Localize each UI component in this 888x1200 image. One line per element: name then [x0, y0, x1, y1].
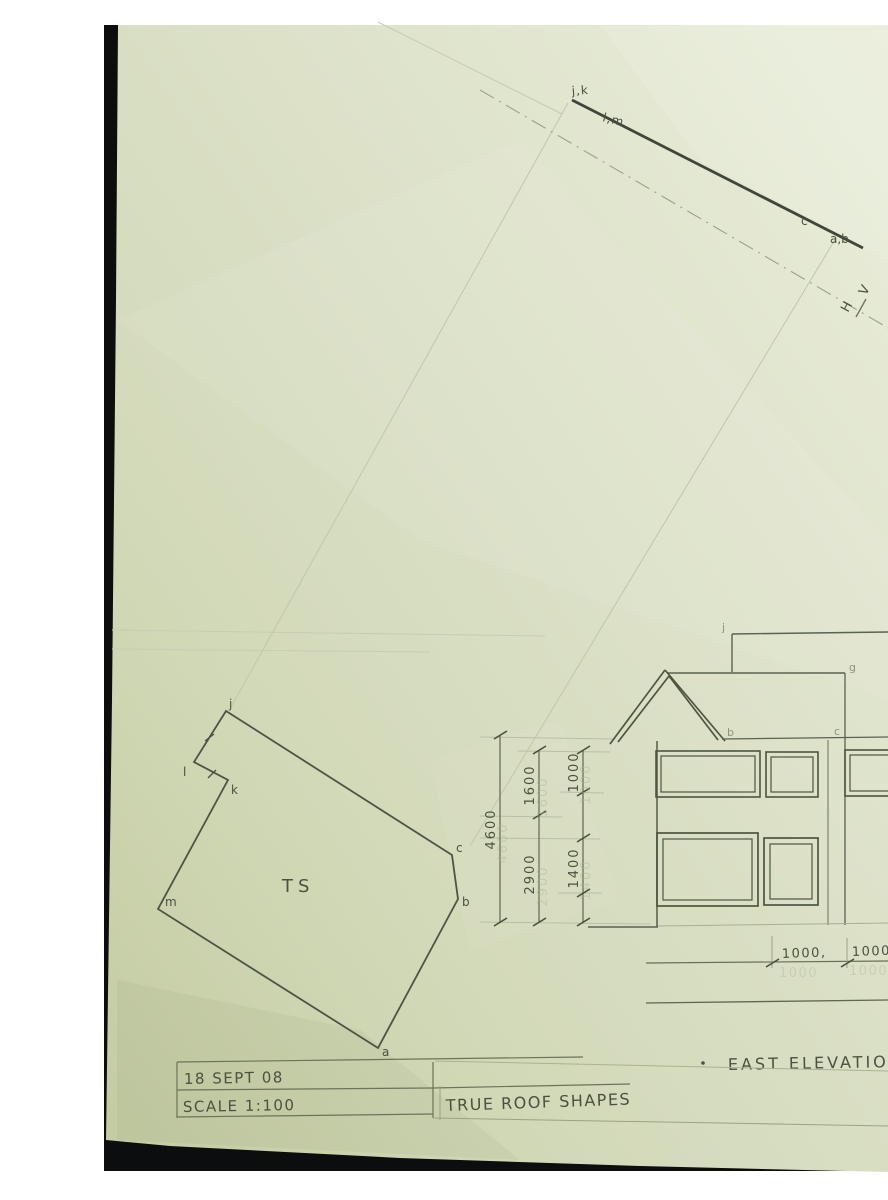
edge-view-label-c: c: [801, 214, 808, 228]
drawing-canvas: j,k l,m c a,b V H j l k m a b c TS: [0, 0, 888, 1200]
ts-vertex-k: k: [231, 783, 238, 797]
title-block-date: 18 SEPT 08: [184, 1068, 284, 1088]
title-dot: [701, 1061, 705, 1065]
ghost-1600: 1600: [536, 776, 551, 817]
ts-vertex-b: b: [462, 895, 470, 909]
ghost-1400: 1400: [579, 859, 594, 900]
elevation-label-c: c: [834, 725, 840, 738]
elevation-label-j: j: [721, 621, 725, 634]
photo-of-drawing-sheet: j,k l,m c a,b V H j l k m a b c TS: [0, 0, 888, 1200]
ghost-4600: 4600: [496, 822, 511, 863]
ghost-1000: 1000: [579, 763, 594, 804]
ghost-spacing-1: 1000: [779, 966, 818, 981]
elevation-label-g: g: [849, 661, 856, 674]
spacing-1000-second: 1000: [852, 944, 888, 960]
ts-vertex-j: j: [228, 697, 232, 711]
title-block-scale: SCALE 1:100: [183, 1096, 296, 1116]
elevation-label-b: b: [727, 726, 734, 739]
edge-view-label-ab: a,b: [830, 232, 849, 246]
edge-view-label-jk: j,k: [570, 83, 589, 98]
ts-vertex-m: m: [165, 895, 177, 909]
true-shape-label: TS: [281, 876, 314, 897]
ts-vertex-l: l: [183, 765, 186, 779]
ts-vertex-a: a: [382, 1045, 389, 1059]
ghost-2900: 2900: [536, 865, 551, 906]
ghost-spacing-2: 1000: [849, 964, 888, 979]
ts-vertex-c: c: [456, 841, 463, 855]
spacing-1000-first: 1000,: [782, 945, 827, 962]
